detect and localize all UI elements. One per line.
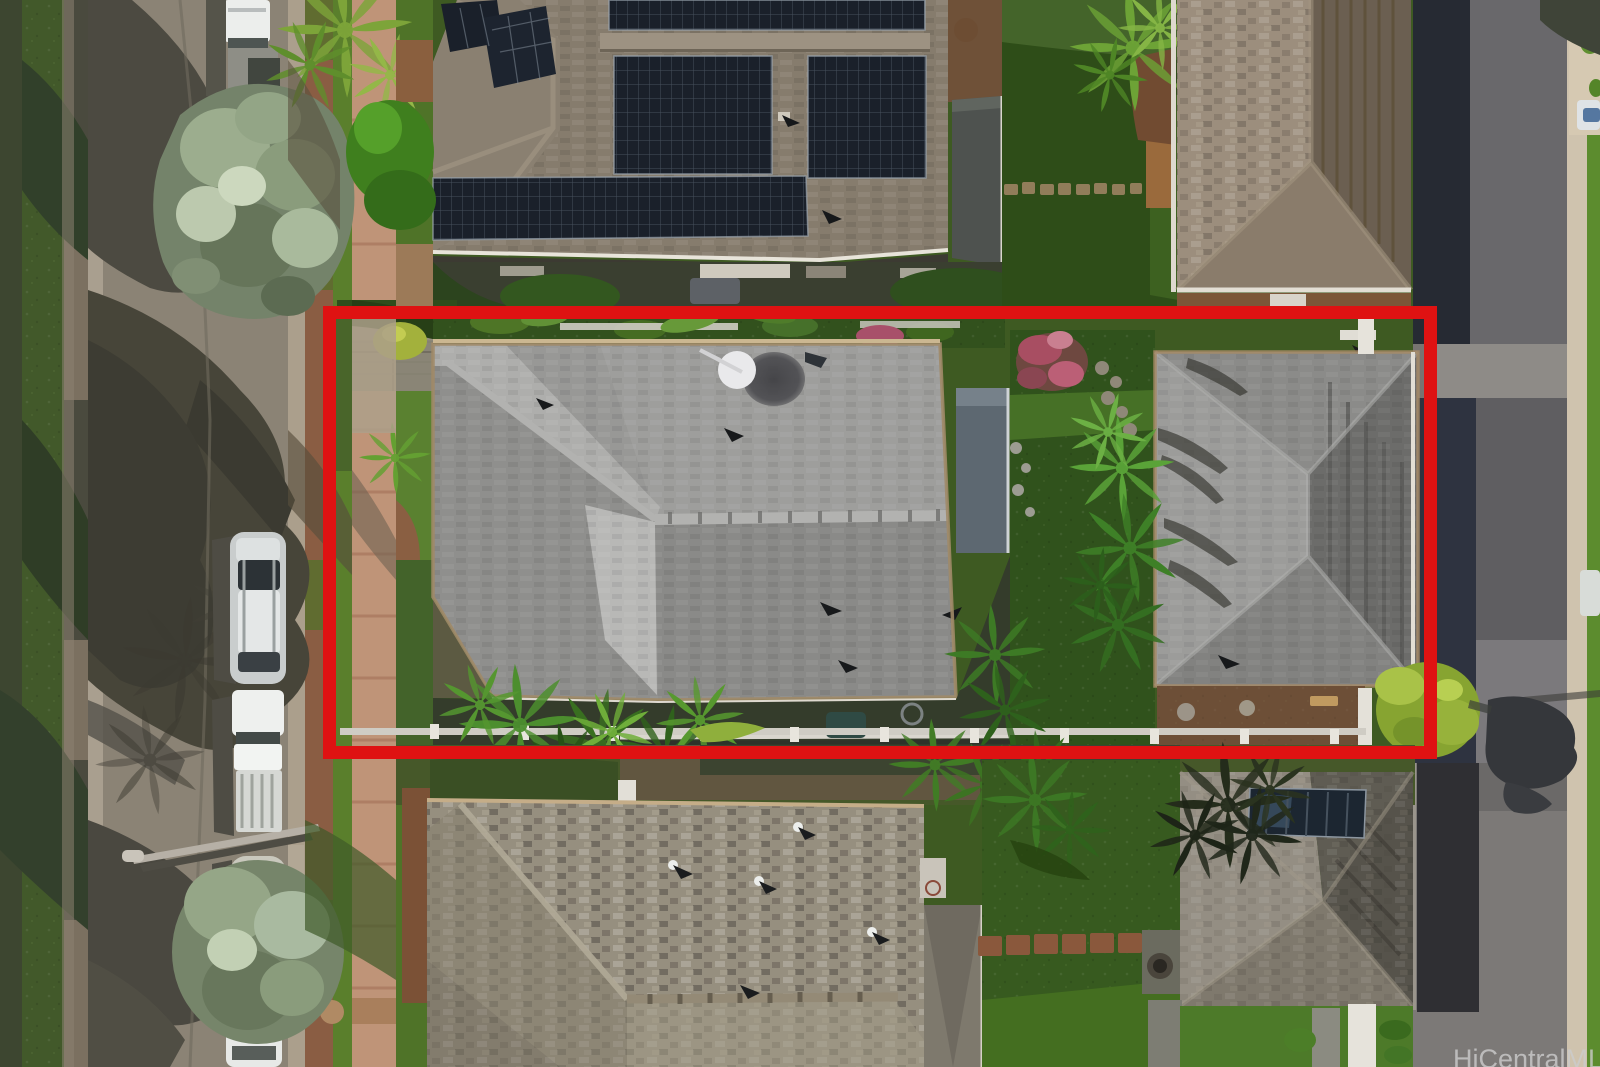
svg-text:HiCentralMLS: HiCentralMLS bbox=[1453, 1044, 1600, 1067]
